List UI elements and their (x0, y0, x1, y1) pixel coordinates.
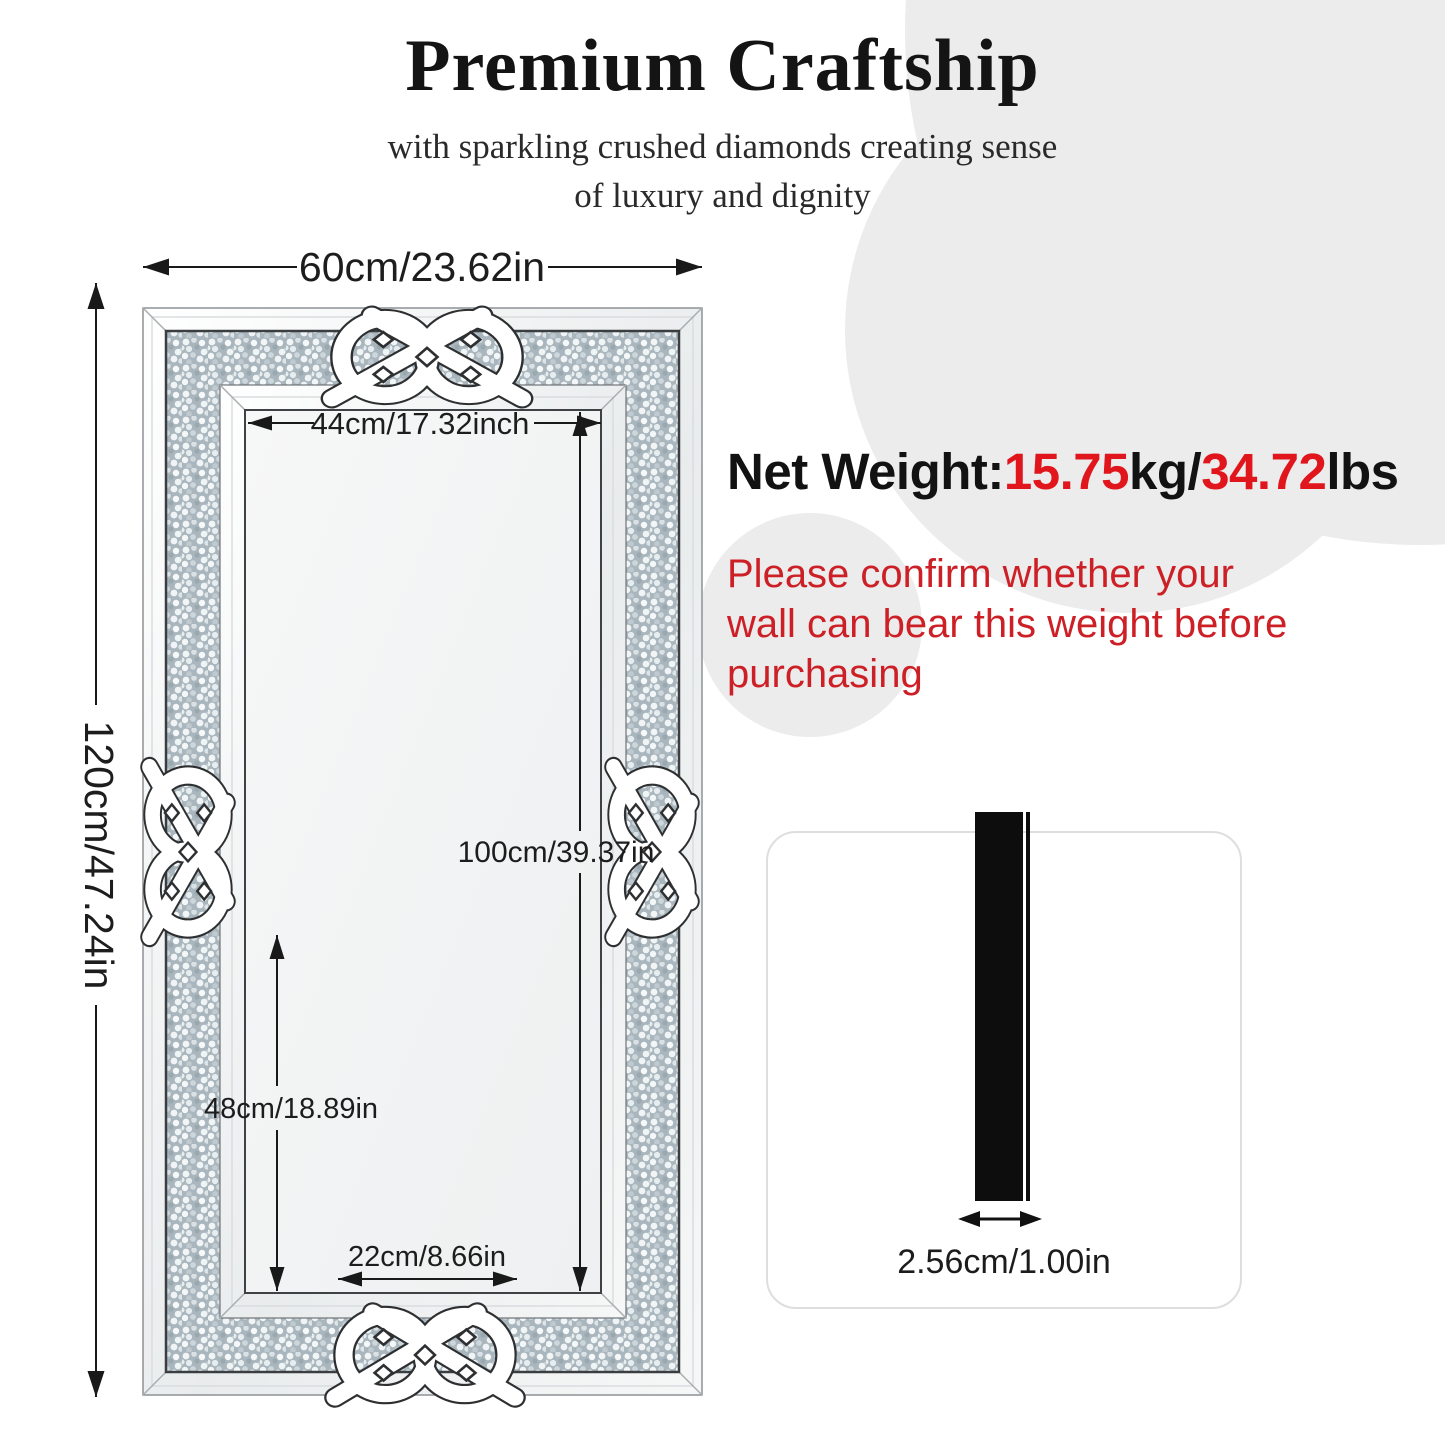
outer-width-label: 60cm/23.62in (299, 244, 545, 290)
warning-line3: purchasing (727, 649, 1387, 699)
bottom-width-label: 22cm/8.66in (348, 1241, 506, 1273)
thickness-label: 2.56cm/1.00in (766, 1243, 1242, 1282)
wall-weight-warning: Please confirm whether your wall can bea… (727, 549, 1387, 699)
net-weight-label: Net Weight: (727, 443, 1004, 500)
net-weight-text: Net Weight:15.75kg/34.72lbs (727, 442, 1399, 501)
lower-height-label: 48cm/18.89in (204, 1093, 378, 1125)
mirror-side-view (975, 812, 1023, 1201)
inner-width-label: 44cm/17.32inch (311, 406, 530, 441)
net-weight-kg-value: 15.75 (1004, 443, 1129, 500)
net-weight-lbs-value: 34.72 (1201, 443, 1326, 500)
net-weight-kg-unit: kg/ (1129, 443, 1201, 500)
product-infographic: Premium Craftship with sparkling crushed… (0, 0, 1445, 1445)
mirror-side-view-edge (1026, 812, 1030, 1201)
mirror-dimension-diagram: 60cm/23.62in 120cm/47.24in 44cm/17.32inc… (0, 0, 740, 1445)
inner-height-label: 100cm/39.37in (458, 836, 655, 869)
net-weight-lbs-unit: lbs (1326, 443, 1398, 500)
warning-line2: wall can bear this weight before (727, 599, 1387, 649)
thickness-arrow-icon (952, 1204, 1048, 1234)
outer-height-label: 120cm/47.24in (76, 721, 122, 990)
warning-line1: Please confirm whether your (727, 549, 1387, 599)
